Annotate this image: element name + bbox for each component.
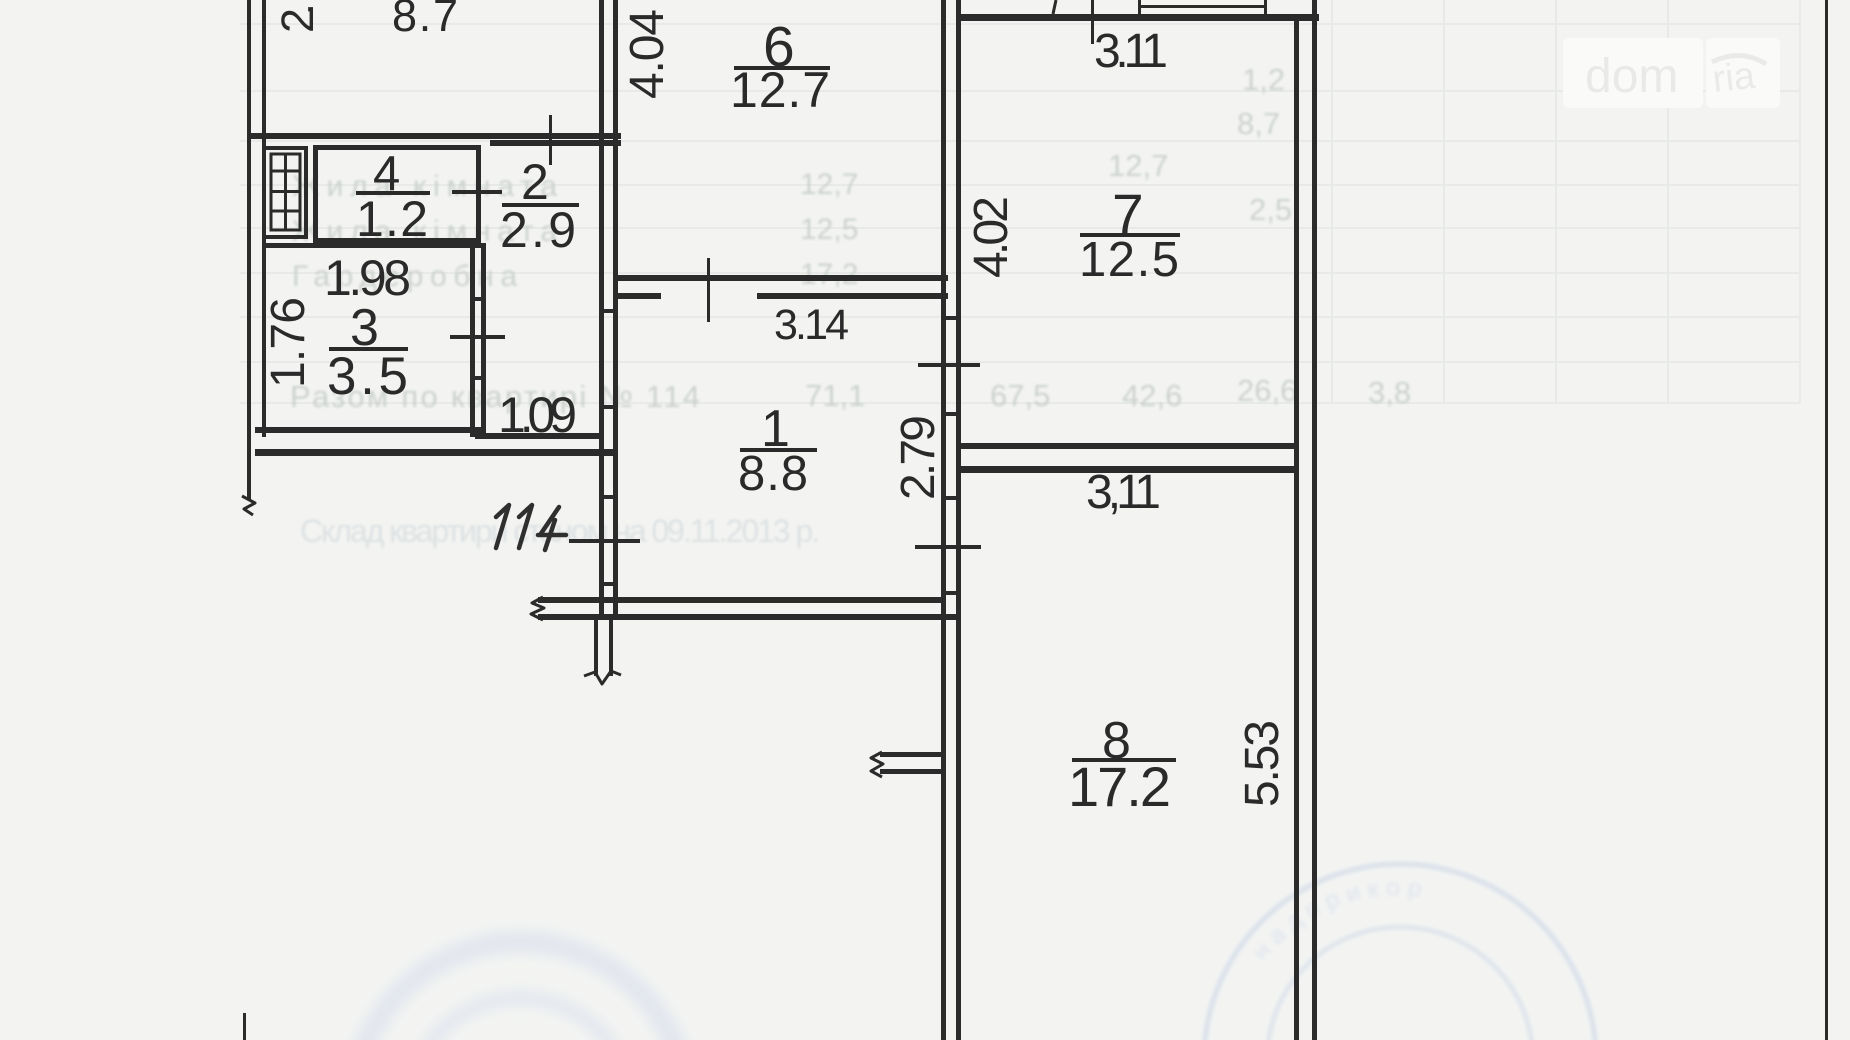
svg-text:8.7: 8.7 (392, 0, 458, 41)
svg-text:3,8: 3,8 (1368, 375, 1411, 410)
svg-text:12,5: 12,5 (800, 213, 858, 246)
svg-text:12.7: 12.7 (730, 62, 830, 118)
svg-text:67,5: 67,5 (990, 378, 1050, 413)
svg-text:3.11: 3.11 (1094, 25, 1168, 78)
svg-text:12.5: 12.5 (1079, 233, 1179, 287)
svg-text:12,7: 12,7 (1108, 148, 1168, 183)
svg-text:71,1: 71,1 (805, 378, 865, 413)
svg-text:3,11: 3,11 (1086, 466, 1161, 519)
svg-text:4.04: 4.04 (621, 9, 674, 99)
svg-text:2.9: 2.9 (500, 202, 576, 258)
svg-text:dom: dom (1585, 50, 1678, 103)
svg-text:Склад квартири станом на 09.11: Склад квартири станом на 09.11.2013 р. (300, 513, 820, 549)
svg-text:4.02: 4.02 (965, 196, 1018, 278)
svg-text:3.14: 3.14 (774, 301, 849, 349)
svg-text:1,2: 1,2 (1242, 62, 1285, 97)
svg-text:1.09: 1.09 (498, 387, 577, 443)
svg-text:1.76: 1.76 (262, 297, 315, 388)
svg-text:3.5: 3.5 (327, 347, 408, 406)
svg-text:8.8: 8.8 (738, 447, 808, 501)
svg-text:1.98: 1.98 (324, 250, 411, 306)
svg-text:12,7: 12,7 (800, 168, 858, 201)
svg-text:17.2: 17.2 (1068, 755, 1171, 818)
svg-text:8,7: 8,7 (1237, 106, 1280, 141)
svg-text:2.79: 2.79 (892, 415, 945, 500)
svg-text:1.2: 1.2 (356, 191, 428, 247)
svg-text:17,2: 17,2 (800, 258, 858, 291)
svg-text:5.53: 5.53 (1236, 720, 1289, 807)
svg-text:42,6: 42,6 (1122, 378, 1182, 413)
svg-text:2.: 2. (272, 3, 323, 33)
svg-text:26,6: 26,6 (1237, 373, 1297, 408)
svg-text:2,5: 2,5 (1249, 192, 1292, 227)
